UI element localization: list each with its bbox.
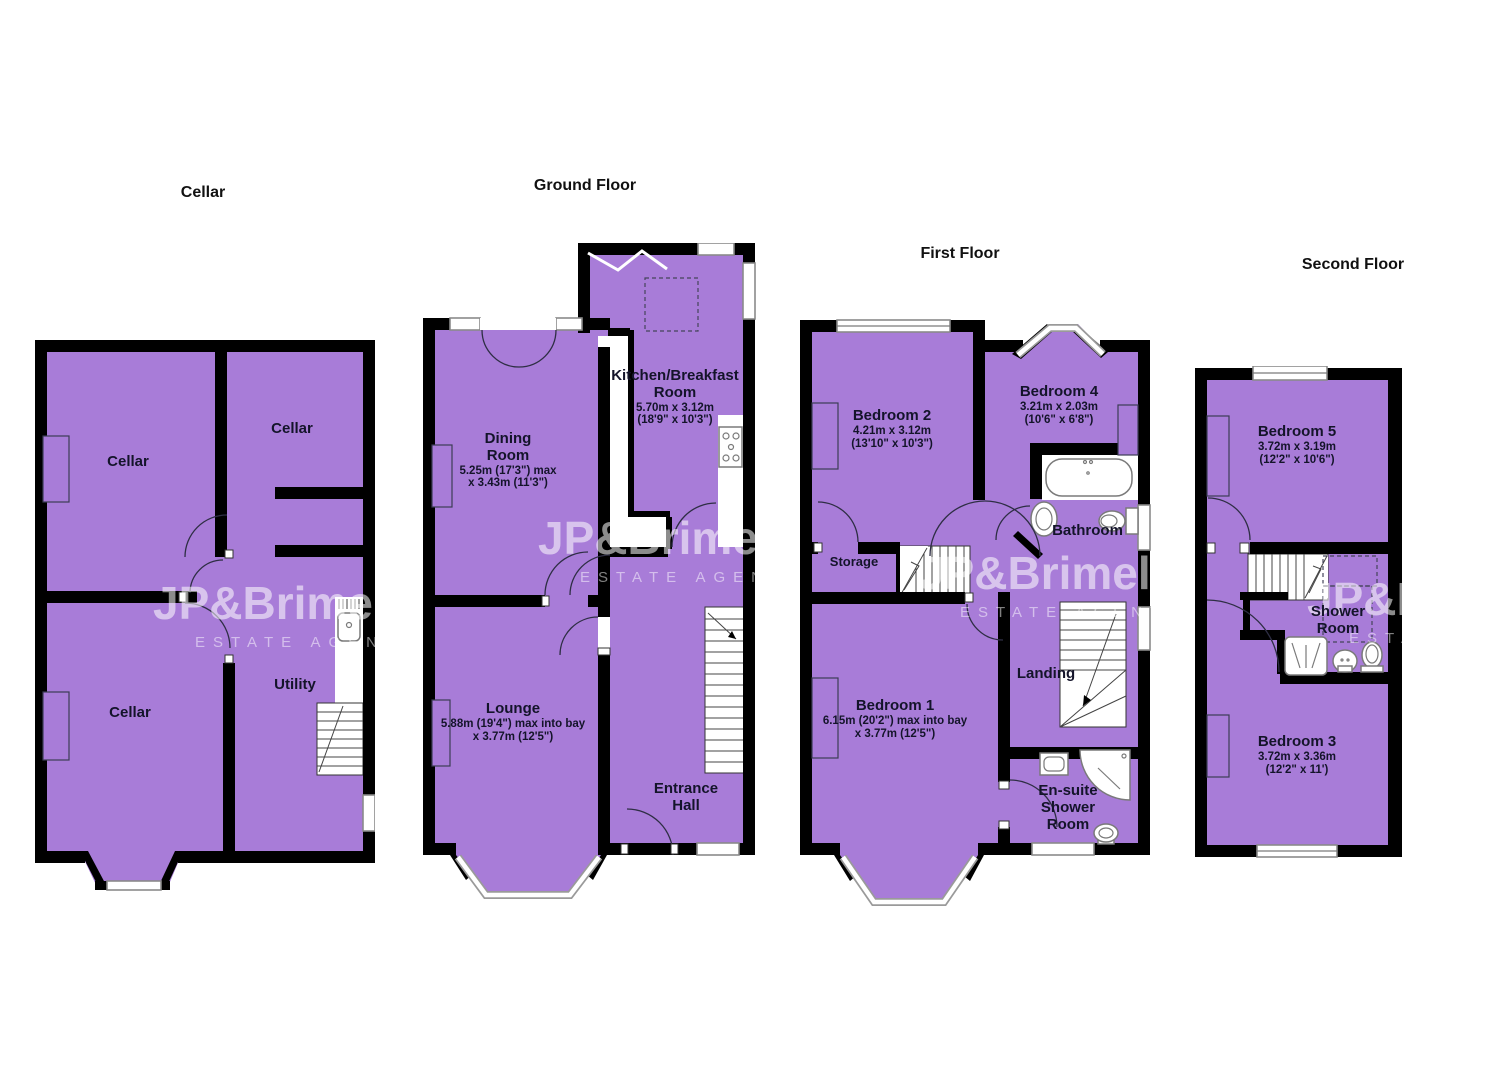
floor-title-second: Second Floor (1263, 256, 1443, 274)
room-label-shower-room: Shower Room (1300, 604, 1376, 638)
room-label-bedroom-1: Bedroom 1 6.15m (20'2") max into bay x 3… (815, 698, 975, 741)
room-label-bedroom-2: Bedroom 2 4.21m x 3.12m (13'10" x 10'3") (822, 408, 962, 451)
room-label-bedroom-3: Bedroom 3 3.72m x 3.36m (12'2" x 11') (1227, 734, 1367, 777)
room-label-entrance-hall: Entrance Hall (646, 781, 726, 815)
floor-title-ground: Ground Floor (495, 177, 675, 195)
room-label-storage: Storage (806, 555, 902, 570)
room-label-cellar-top-left: Cellar (68, 454, 188, 471)
second-floor-plan: JP&Brimelow ESTATE AGENTS Bedroom 5 3.72… (1195, 366, 1402, 858)
floor-title-first: First Floor (870, 245, 1050, 263)
floorplan-page: Cellar Ground Floor First Floor Second F… (0, 0, 1485, 1080)
room-label-utility: Utility (235, 677, 355, 694)
first-floor-plan: JP&Brimelow ESTATE AGENTS Bedroom 2 4.21… (800, 318, 1152, 910)
floor-title-cellar: Cellar (143, 184, 263, 202)
room-label-dining-room: Dining Room 5.25m (17'3") max x 3.43m (1… (448, 431, 568, 490)
room-label-cellar-bottom: Cellar (70, 705, 190, 722)
room-label-landing: Landing (996, 666, 1096, 683)
room-label-ensuite-shower-room: En-suite Shower Room (1028, 783, 1108, 833)
cellar-plan: JP&Brimelow ESTATE AGENTS Cellar Cellar … (35, 340, 375, 905)
room-label-lounge: Lounge 5.88m (19'4") max into bay x 3.77… (430, 701, 596, 744)
ground-floor-plan: JP&Brimelow ESTATE AGENTS Kitchen/Breakf… (420, 243, 760, 908)
room-label-bedroom-4: Bedroom 4 3.21m x 2.03m (10'6" x 6'8") (989, 384, 1129, 427)
room-label-cellar-top-right: Cellar (232, 421, 352, 438)
room-label-bathroom: Bathroom (1030, 523, 1145, 540)
room-label-kitchen-breakfast: Kitchen/Breakfast Room 5.70m x 3.12m (18… (595, 368, 755, 427)
room-label-bedroom-5: Bedroom 5 3.72m x 3.19m (12'2" x 10'6") (1227, 424, 1367, 467)
